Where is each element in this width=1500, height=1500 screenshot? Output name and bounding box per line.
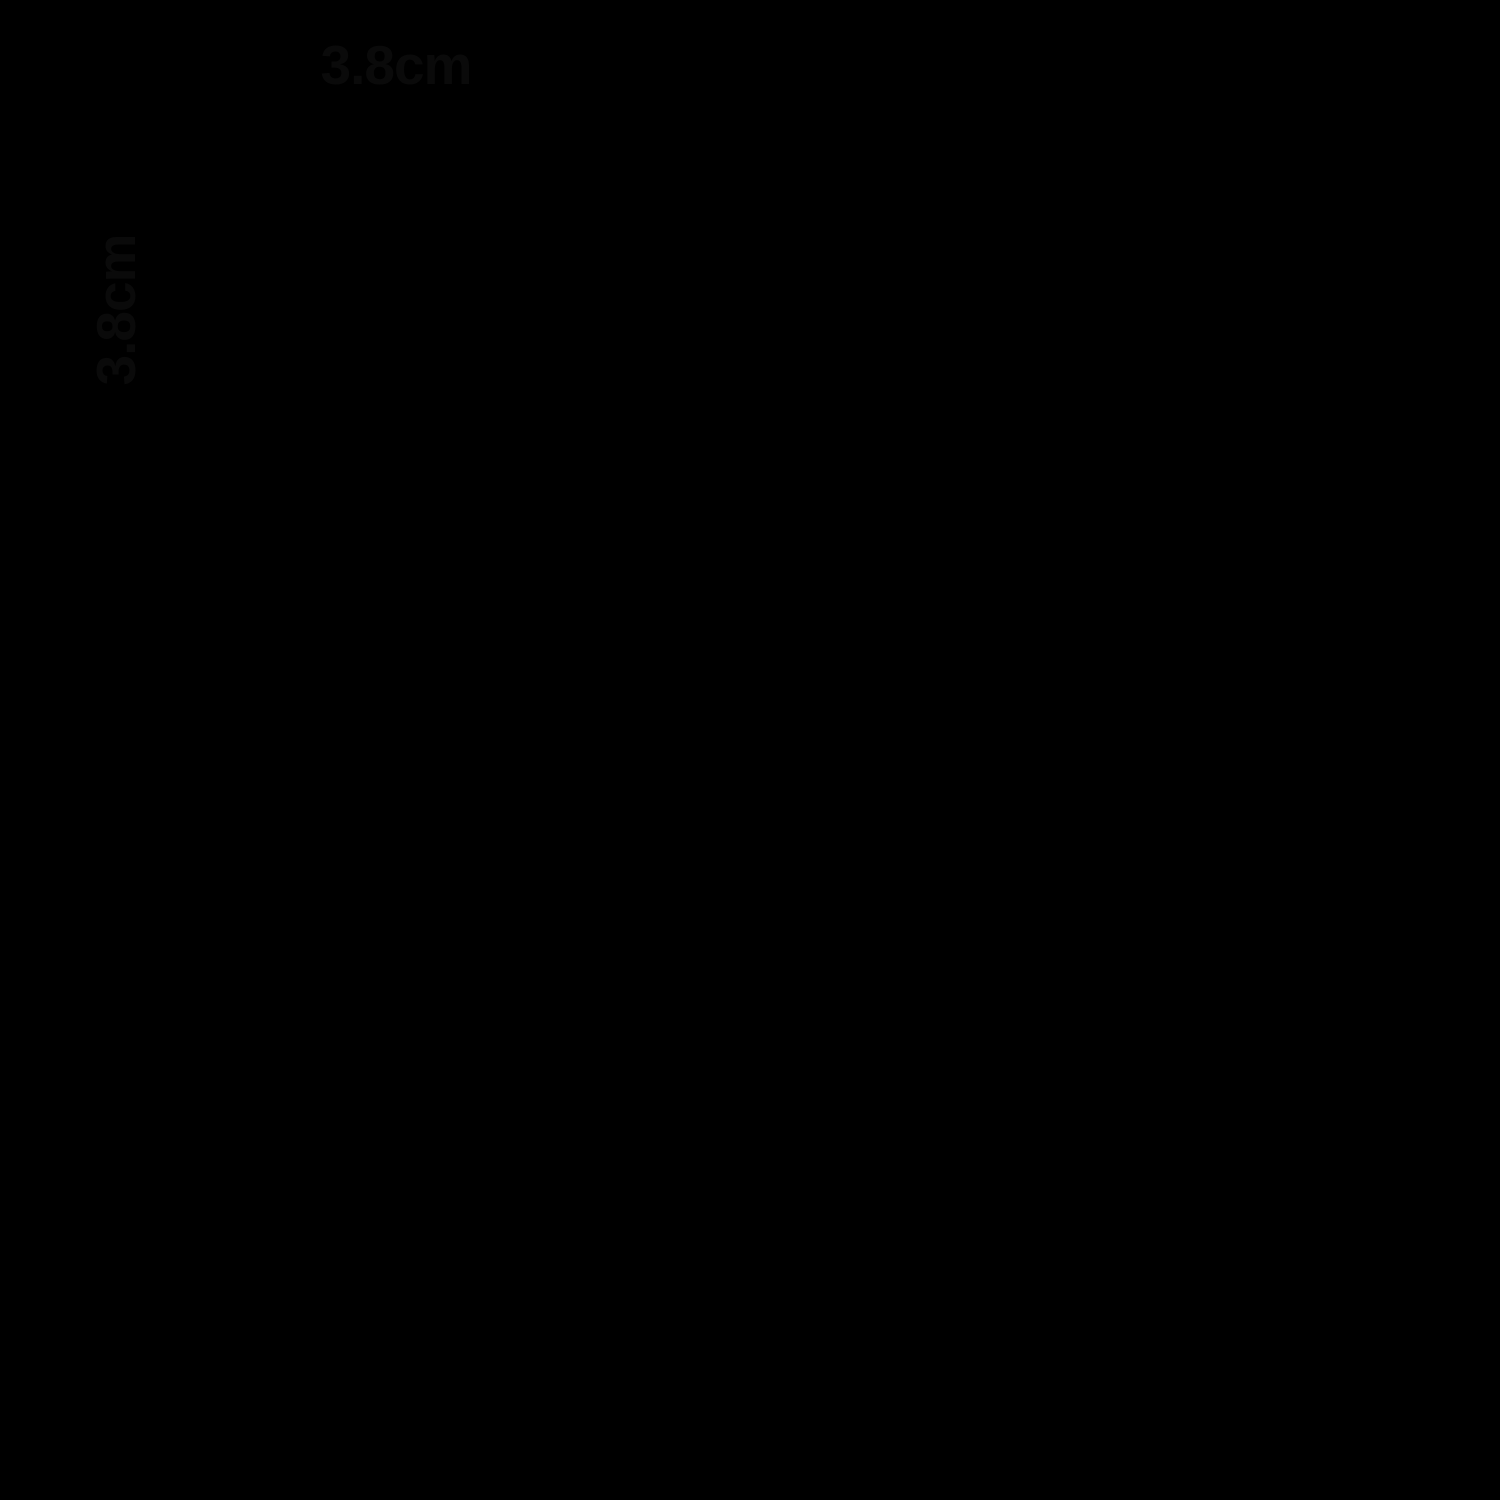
mesh-canvas: 3.8cm 3.8cm <box>0 0 1500 1500</box>
left-dimension-label: 3.8cm <box>85 235 147 386</box>
left-dimension: 3.8cm <box>85 235 147 386</box>
mesh-figure: 3.8cm 3.8cm <box>0 0 1500 1500</box>
background <box>0 0 1500 1500</box>
top-dimension-label: 3.8cm <box>321 34 472 96</box>
top-dimension: 3.8cm <box>321 34 472 96</box>
